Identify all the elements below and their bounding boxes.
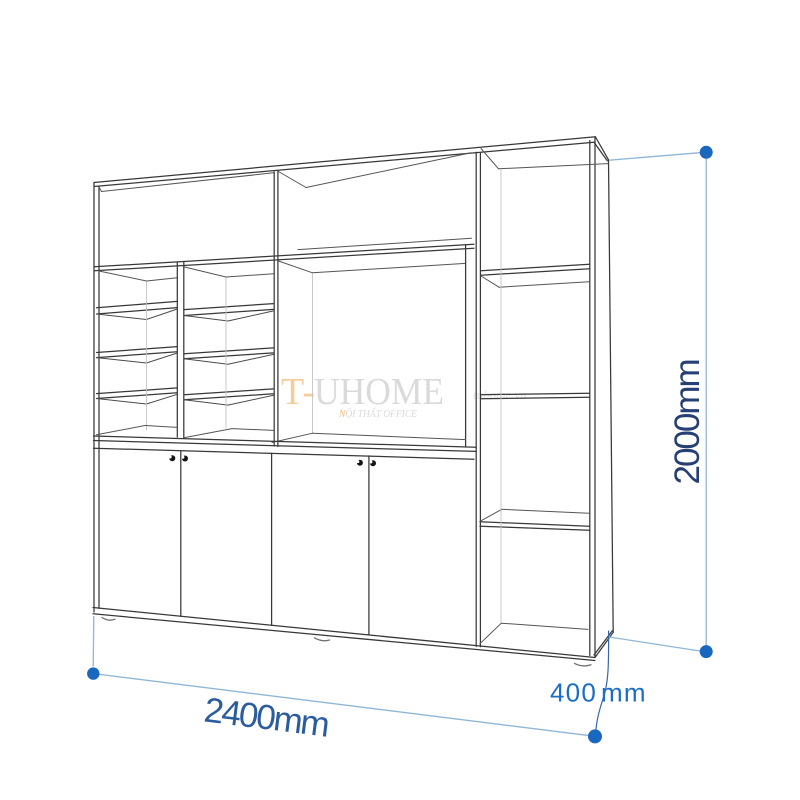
svg-text:NỘI THẤT OFFICE: NỘI THẤT OFFICE xyxy=(338,407,417,420)
svg-text:UHOME: UHOME xyxy=(314,371,444,413)
svg-text:2000mm: 2000mm xyxy=(668,360,707,484)
svg-text:T-: T- xyxy=(281,371,315,413)
